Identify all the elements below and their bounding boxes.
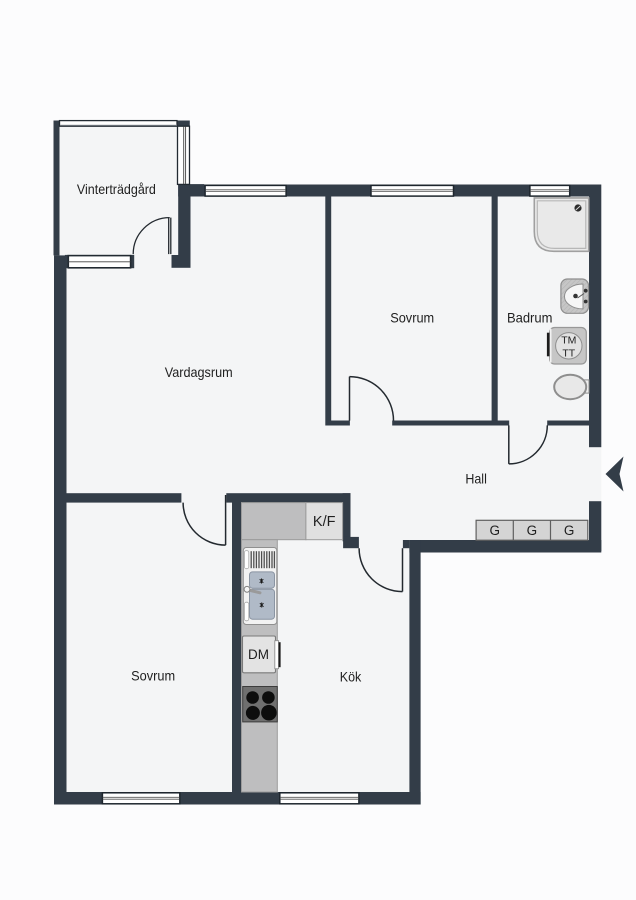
svg-text:DM: DM <box>248 647 269 662</box>
svg-text:G: G <box>527 523 538 538</box>
svg-text:Badrum: Badrum <box>507 309 553 325</box>
svg-text:K/F: K/F <box>313 514 336 530</box>
svg-text:Hall: Hall <box>465 470 487 486</box>
svg-text:TT: TT <box>562 348 575 360</box>
svg-text:Vardagsrum: Vardagsrum <box>165 364 233 380</box>
svg-text:G: G <box>564 523 575 538</box>
svg-text:TM: TM <box>561 335 576 347</box>
svg-text:Vinterträdgård: Vinterträdgård <box>77 181 156 197</box>
svg-text:Sovrum: Sovrum <box>131 667 175 683</box>
svg-text:G: G <box>489 523 500 538</box>
svg-text:Kök: Kök <box>340 668 362 684</box>
svg-text:Sovrum: Sovrum <box>390 309 434 325</box>
